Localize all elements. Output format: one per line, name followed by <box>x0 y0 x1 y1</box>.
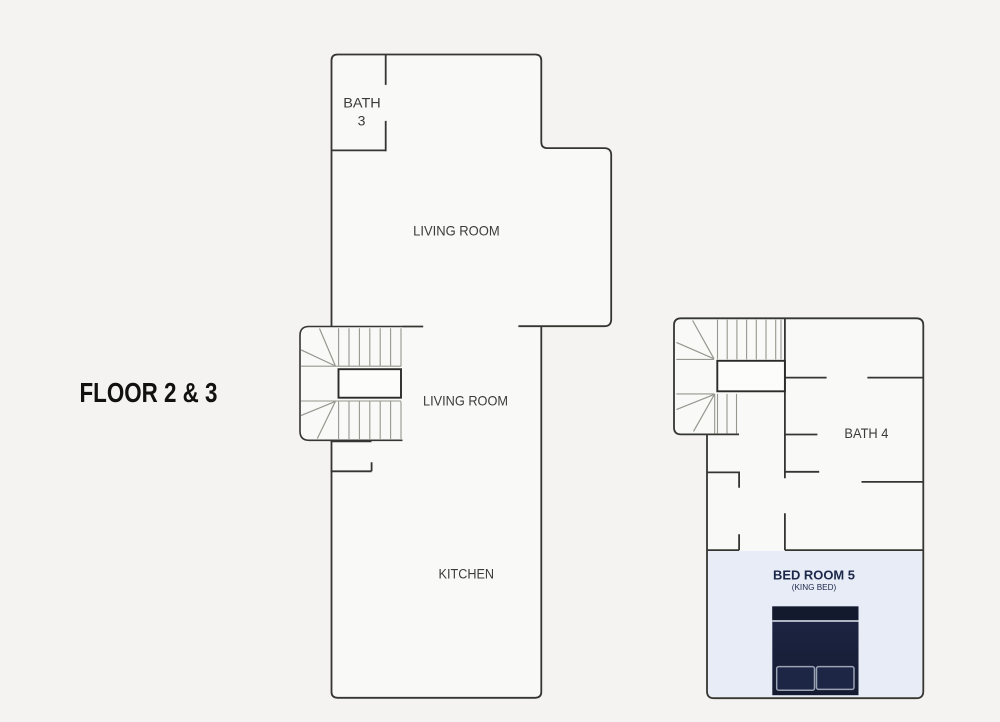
svg-text:LIVING ROOM: LIVING ROOM <box>413 222 500 238</box>
svg-text:(KING BED): (KING BED) <box>792 583 837 592</box>
svg-text:BED ROOM 5: BED ROOM 5 <box>773 568 855 583</box>
svg-text:BATH: BATH <box>343 95 381 111</box>
svg-text:LIVING ROOM: LIVING ROOM <box>423 392 508 408</box>
svg-text:KITCHEN: KITCHEN <box>439 567 495 582</box>
svg-text:FLOOR 2 & 3: FLOOR 2 & 3 <box>80 377 218 408</box>
svg-text:3: 3 <box>358 113 366 129</box>
svg-text:BATH 4: BATH 4 <box>844 425 888 441</box>
